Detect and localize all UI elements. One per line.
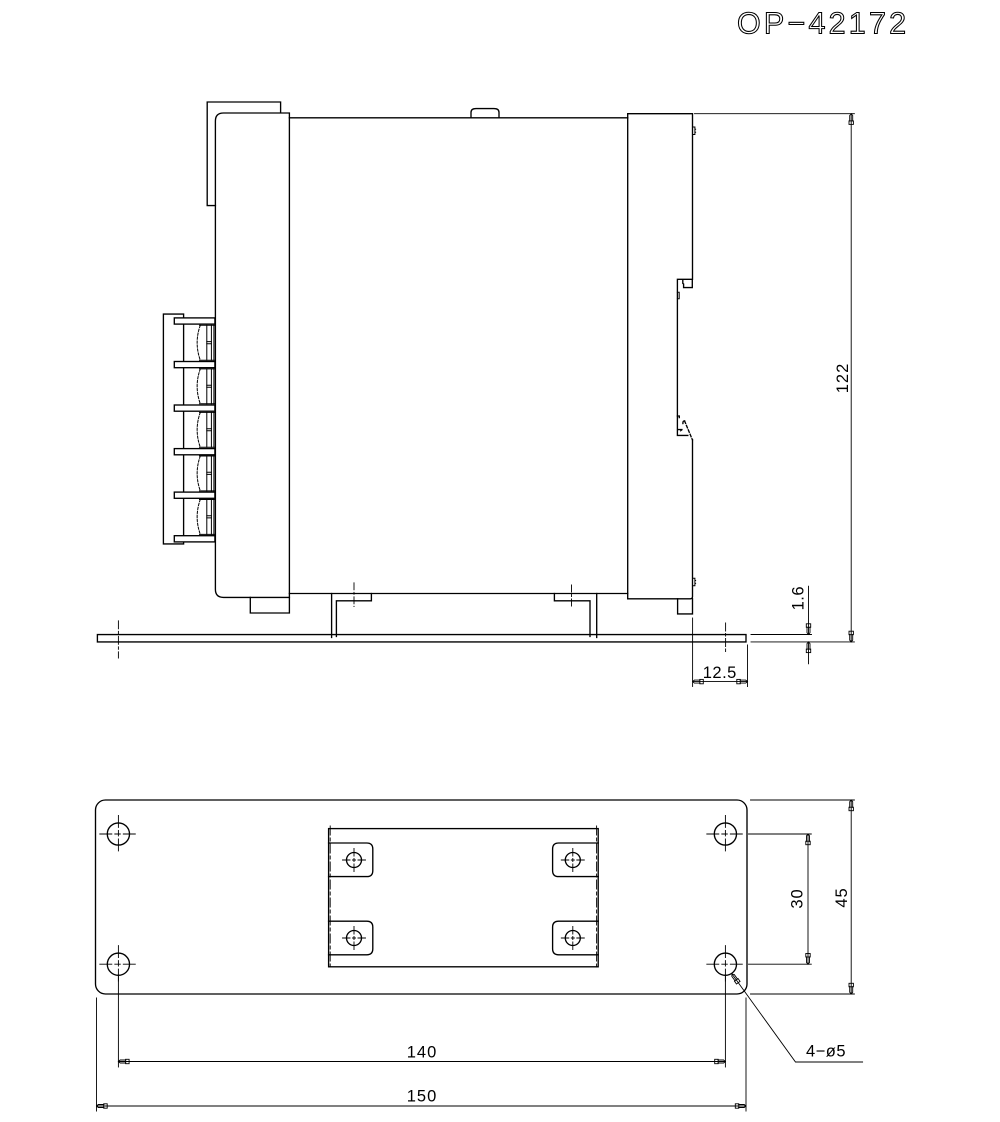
svg-text:OP−42172: OP−42172 [737, 7, 909, 41]
svg-text:122: 122 [834, 363, 852, 394]
svg-text:12.5: 12.5 [703, 664, 737, 682]
svg-text:30: 30 [789, 888, 807, 908]
svg-text:1.6: 1.6 [790, 586, 808, 610]
svg-text:4−ø5: 4−ø5 [806, 1043, 846, 1061]
svg-text:45: 45 [833, 887, 851, 907]
svg-text:140: 140 [407, 1044, 438, 1062]
svg-text:150: 150 [407, 1088, 438, 1106]
